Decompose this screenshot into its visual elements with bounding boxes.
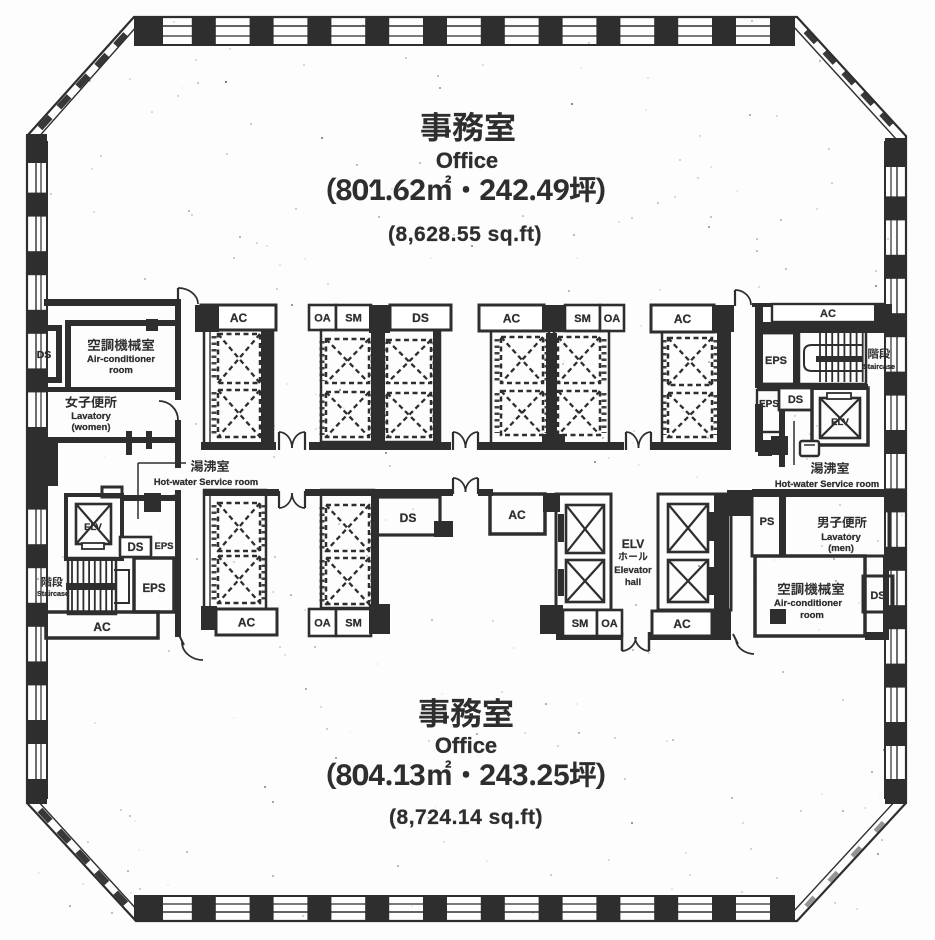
- svg-text:ELV: ELV: [84, 522, 102, 533]
- svg-text:AC: AC: [673, 617, 691, 631]
- svg-text:AC: AC: [503, 311, 521, 325]
- svg-text:Staircase: Staircase: [863, 362, 895, 371]
- svg-text:AC: AC: [93, 620, 111, 634]
- svg-text:ELV: ELV: [831, 417, 849, 428]
- svg-text:DS: DS: [412, 311, 429, 325]
- svg-text:Lavatory: Lavatory: [821, 532, 861, 543]
- svg-text:OA: OA: [604, 313, 621, 325]
- svg-text:DS: DS: [788, 394, 803, 406]
- svg-text:AC: AC: [508, 508, 526, 522]
- svg-text:DS: DS: [128, 542, 144, 554]
- svg-text:Air-conditioner: Air-conditioner: [774, 598, 842, 609]
- svg-text:Office: Office: [436, 148, 498, 173]
- svg-text:Lavatory: Lavatory: [71, 411, 111, 422]
- svg-text:DS: DS: [400, 511, 417, 525]
- svg-text:AC: AC: [230, 311, 248, 325]
- svg-text:DS: DS: [37, 349, 52, 361]
- svg-text:EPS: EPS: [142, 583, 165, 595]
- svg-text:Air-conditioner: Air-conditioner: [87, 354, 155, 365]
- svg-text:ELV: ELV: [622, 537, 644, 551]
- svg-text:(women): (women): [71, 422, 110, 433]
- svg-text:SM: SM: [574, 313, 591, 325]
- svg-text:Hot-water Service room: Hot-water Service room: [154, 477, 258, 487]
- svg-text:Elevator: Elevator: [614, 565, 652, 576]
- svg-text:(8,724.14 sq.ft): (8,724.14 sq.ft): [389, 806, 543, 829]
- svg-text:OA: OA: [314, 617, 331, 629]
- svg-text:SM: SM: [345, 312, 362, 324]
- svg-text:PS: PS: [760, 516, 775, 528]
- svg-text:OA: OA: [314, 312, 331, 324]
- svg-text:(men): (men): [828, 543, 854, 554]
- svg-text:AC: AC: [238, 615, 256, 629]
- svg-text:(8,628.55 sq.ft): (8,628.55 sq.ft): [388, 223, 542, 246]
- svg-text:SM: SM: [345, 617, 362, 629]
- svg-text:Office: Office: [435, 733, 497, 758]
- svg-text:EPS: EPS: [154, 541, 173, 552]
- svg-text:OA: OA: [601, 618, 618, 630]
- svg-text:room: room: [109, 365, 133, 376]
- svg-text:room: room: [800, 610, 824, 621]
- svg-text:AC: AC: [820, 308, 836, 320]
- svg-text:hall: hall: [625, 577, 641, 588]
- svg-text:Hot-water Service room: Hot-water Service room: [775, 479, 879, 489]
- svg-text:AC: AC: [674, 312, 692, 326]
- svg-text:Staircase: Staircase: [37, 589, 69, 598]
- svg-text:EPS: EPS: [765, 355, 787, 367]
- svg-text:SM: SM: [572, 618, 589, 630]
- svg-text:EPS: EPS: [759, 399, 779, 410]
